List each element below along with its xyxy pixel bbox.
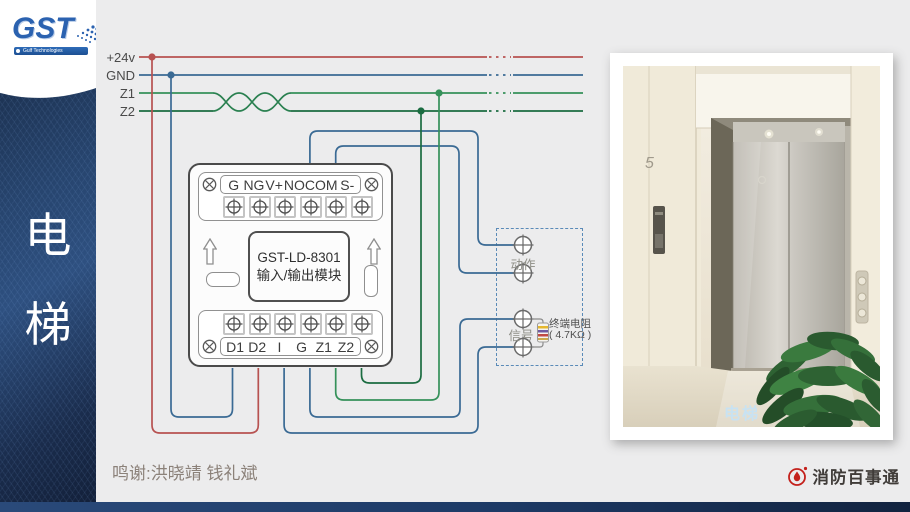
terminal-label-z1: Z1	[313, 339, 335, 355]
brand-name: 消防百事通	[813, 464, 901, 488]
bottom-bar	[0, 502, 910, 512]
gst-dots-decoration	[72, 16, 96, 44]
arrow-up-icon	[203, 238, 217, 265]
signal-label: 信号	[494, 325, 548, 344]
terminal-screw	[274, 196, 296, 218]
terminal-screw	[223, 196, 245, 218]
gst-logo-tagline-bar: Gulf Technologies	[14, 47, 88, 55]
terminal-resistor-value: ( 4.7KΩ )	[549, 329, 591, 341]
terminal-screw	[300, 196, 322, 218]
module-top-terminal-strip: G NG V+ NO COM S-	[198, 172, 383, 221]
terminal-screw	[300, 313, 322, 335]
terminal-screw	[274, 313, 296, 335]
brand-flame-icon	[787, 465, 809, 487]
terminal-label-g2: G	[291, 339, 313, 355]
page: { "sidebar": { "logo_text": "GST", "logo…	[0, 0, 910, 512]
terminal-screw	[351, 313, 373, 335]
photo-caption: 电梯	[724, 404, 760, 423]
brand-logo: 消防百事通	[787, 464, 901, 488]
io-module: G NG V+ NO COM S- GST-LD-8301 输入/输出模块	[188, 163, 393, 367]
corner-screw-icon	[364, 339, 379, 354]
terminal-screw	[325, 313, 347, 335]
module-name: 输入/输出模块	[257, 268, 342, 284]
terminal-label-g: G	[224, 177, 243, 193]
vertical-page-title: 电 梯	[0, 212, 96, 348]
module-slot-vertical	[364, 265, 378, 297]
terminal-screw	[325, 196, 347, 218]
terminal-label-d2: D2	[246, 339, 268, 355]
junction-dot-gnd	[167, 71, 174, 78]
elevator-photo: 5 电梯	[623, 66, 880, 427]
module-top-labels: G NG V+ NO COM S-	[220, 175, 361, 194]
junction-dot-z1	[435, 89, 442, 96]
terminal-label-i: I	[268, 339, 290, 355]
terminal-label-sm: S-	[338, 177, 357, 193]
terminal-screw	[223, 313, 245, 335]
credits-text: 鸣谢:洪晓靖 钱礼斌	[112, 459, 257, 484]
terminal-label-ng: NG	[243, 177, 264, 193]
sidebar: GST Gulf Technologies 电 梯	[0, 0, 96, 512]
corner-screw-icon	[364, 177, 379, 192]
title-char-1: 电	[25, 212, 72, 259]
twisted-pair-symbol	[213, 93, 291, 111]
junction-dot-z2	[417, 107, 424, 114]
terminal-label-no: NO	[284, 177, 305, 193]
module-nameplate: GST-LD-8301 输入/输出模块	[248, 231, 350, 302]
action-terminal-1	[513, 235, 534, 256]
terminal-screw	[249, 313, 271, 335]
elevator-photo-frame: 5 电梯	[610, 53, 893, 440]
corner-screw-icon	[202, 177, 217, 192]
module-slot-horizontal	[206, 272, 240, 287]
terminal-label-com: COM	[305, 177, 338, 193]
gst-logo-tagline: Gulf Technologies	[23, 48, 63, 54]
module-bottom-labels: D1 D2 I G Z1 Z2	[220, 337, 361, 356]
terminal-label-vp: V+	[264, 177, 283, 193]
gst-tagline-dot-icon	[16, 49, 20, 53]
arrow-up-icon	[367, 238, 381, 265]
floor-number-sign: 5	[645, 155, 654, 172]
gst-logo: GST Gulf Technologies	[12, 14, 96, 44]
module-top-screws	[223, 196, 373, 219]
terminal-screw	[249, 196, 271, 218]
module-bottom-terminal-strip: D1 D2 I G Z1 Z2	[198, 310, 383, 359]
terminal-label-z2: Z2	[335, 339, 357, 355]
module-bottom-screws	[223, 313, 373, 336]
junction-dot-24v	[148, 53, 155, 60]
corner-screw-icon	[202, 339, 217, 354]
terminal-label-d1: D1	[224, 339, 246, 355]
module-model: GST-LD-8301	[257, 250, 340, 266]
title-char-2: 梯	[25, 301, 72, 348]
terminal-screw	[351, 196, 373, 218]
action-label: 动作	[496, 254, 550, 273]
